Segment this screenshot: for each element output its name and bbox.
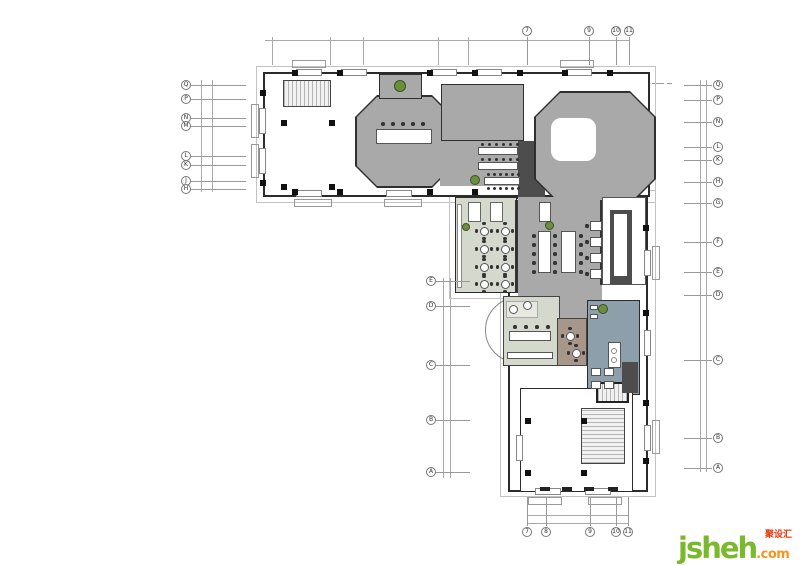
dining-table-round-chair [568, 342, 572, 346]
communal-chairs-dot [553, 252, 557, 256]
dining-table-round-chair [561, 334, 565, 338]
stair-room-upper [283, 80, 331, 107]
communal-chairs-dot [579, 270, 583, 274]
cafe-table-round [480, 245, 489, 254]
booth-chairs-dot [585, 240, 588, 243]
cafe-table-round-chair [503, 290, 507, 294]
training-chairs-dot [505, 173, 508, 176]
plant [470, 175, 480, 185]
wc-stall [604, 368, 614, 376]
window [644, 250, 651, 276]
cafe-table-round-chair [503, 258, 507, 262]
cafe-table-round-chair [482, 240, 486, 244]
grid-tick-left-upper-L [191, 156, 246, 157]
dim-line [700, 80, 701, 472]
lounge-chair [523, 301, 532, 310]
training-table [478, 147, 518, 155]
training-table [484, 177, 520, 185]
wc-dark-pocket [622, 362, 638, 393]
window-bay [251, 144, 259, 178]
dining-table-round [566, 332, 575, 341]
window [644, 330, 651, 356]
grid-bubble-right-A: A [713, 463, 723, 473]
column [281, 120, 287, 126]
window [516, 435, 523, 461]
window [296, 190, 322, 197]
dim-tick [330, 37, 331, 65]
training-chairs-dot [493, 173, 496, 176]
grid-tick-right-F [684, 242, 712, 243]
lobby-skylight [551, 118, 596, 161]
window [341, 69, 367, 76]
grid-bubble-left-upper-H: H [181, 184, 191, 194]
grid-tick-left-lower-D [436, 306, 470, 307]
grid-bubble-left-lower-A: A [426, 467, 436, 477]
grid-tick-right-A [684, 468, 712, 469]
grid-bubble-right-F: F [713, 237, 723, 247]
grid-tick-right-H [684, 182, 712, 183]
column [337, 70, 343, 76]
grid-tick-left-lower-A [436, 472, 470, 473]
training-chairs-dot [481, 143, 484, 146]
window-bay [652, 420, 660, 454]
window-bay [528, 497, 562, 505]
logo-tld: .com [756, 547, 789, 562]
lounge-chairs-dot [524, 325, 528, 329]
grid-bubble-right-D: D [713, 290, 723, 300]
cafe-table-round-chair [511, 282, 515, 286]
sill-dash [584, 487, 594, 491]
window-bay [652, 246, 660, 280]
booth-chairs-dot [585, 224, 588, 227]
cafe-table-round [480, 280, 489, 289]
grid-tick-left-upper-J [191, 181, 246, 182]
dim-line [527, 523, 629, 524]
grid-bubble-right-C: C [713, 355, 723, 365]
grid-bubble-bottom-11: 11 [623, 527, 633, 537]
dining-table-round-chair [574, 359, 578, 363]
booth-table [590, 253, 602, 263]
cafe-table-round [480, 227, 489, 236]
conference-chairs-dot [421, 122, 425, 126]
column [581, 470, 587, 476]
grid-bubble-top-9: 9 [584, 26, 594, 36]
window [386, 190, 412, 197]
window [431, 69, 457, 76]
window [644, 425, 651, 451]
cafe-table-round-chair [475, 247, 479, 251]
grid-bubble-left-lower-B: B [426, 415, 436, 425]
wc-basin [611, 357, 617, 363]
sill-dash [540, 487, 550, 491]
grid-tick-top-11 [629, 37, 630, 65]
training-chairs-dot [495, 143, 498, 146]
wc-urinal [590, 305, 598, 310]
training-chairs-dot [481, 158, 484, 161]
column [517, 70, 523, 76]
column [329, 184, 335, 190]
plant [462, 223, 470, 231]
grid-bubble-bottom-10: 10 [611, 527, 621, 537]
grid-bubble-left-upper-M: M [181, 121, 191, 131]
window [259, 108, 266, 134]
conference-chairs-dot [381, 122, 385, 126]
column [643, 400, 649, 406]
note-mark [667, 83, 672, 84]
private-dining-room [557, 318, 587, 366]
cafe-table-round-chair [482, 258, 486, 262]
window-bay [292, 60, 326, 68]
cafe-table-round [501, 280, 510, 289]
grid-tick-right-E [684, 272, 712, 273]
dim-line [201, 80, 202, 192]
plant [598, 304, 608, 314]
corridor-wall [515, 200, 518, 293]
function-room [441, 84, 524, 141]
communal-chairs-dot [532, 252, 536, 256]
communal-chairs-dot [579, 252, 583, 256]
jsheh-logo: 聚设汇 jsheh.com [678, 527, 794, 563]
service-table [539, 202, 551, 222]
column [260, 90, 266, 96]
communal-chairs-dot [532, 234, 536, 238]
column [562, 70, 568, 76]
grid-bubble-bottom-8: 8 [541, 527, 551, 537]
cafe-table-round-chair [475, 229, 479, 233]
booth-table [590, 269, 602, 279]
dim-tick [468, 37, 469, 65]
booth-chairs-dot [585, 272, 588, 275]
window [259, 148, 266, 174]
grid-tick-bottom-10 [616, 497, 617, 526]
lounge-sofa [507, 352, 553, 359]
grid-tick-left-upper-M [191, 126, 246, 127]
cafe-table-rect [490, 202, 503, 222]
grid-bubble-right-N: N [713, 117, 723, 127]
cafe-table-round-chair [475, 265, 479, 269]
grid-bubble-right-G: G [713, 198, 723, 208]
column [643, 310, 649, 316]
training-chairs-dot [516, 143, 519, 146]
grid-tick-right-G [684, 203, 712, 204]
grid-tick-bottom-7 [527, 497, 528, 526]
cafe-table-round-chair [490, 247, 494, 251]
dim-line [212, 80, 213, 192]
grid-bubble-left-lower-E: E [426, 276, 436, 286]
communal-chairs-dot [532, 261, 536, 265]
cafe-table-round-chair [482, 275, 486, 279]
dining-table-round-chair [574, 344, 578, 348]
bar-counter [614, 214, 627, 276]
column [525, 470, 531, 476]
lounge-chair [509, 305, 518, 314]
sill-dash [608, 487, 618, 491]
conference-chairs-dot [401, 122, 405, 126]
plant [394, 80, 406, 92]
grid-tick-bottom-9 [590, 497, 591, 526]
grid-tick-left-upper-K [191, 165, 246, 166]
wc-stall [591, 368, 601, 376]
lounge-chairs-dot [546, 325, 550, 329]
grid-tick-left-upper-N [191, 118, 246, 119]
training-table [478, 162, 518, 170]
booth-table [590, 221, 602, 231]
lounge-table [509, 331, 551, 341]
grid-bubble-left-upper-Q: Q [181, 80, 191, 90]
column [607, 70, 613, 76]
dim-line [450, 278, 451, 478]
plant [545, 221, 554, 230]
grid-bubble-left-lower-C: C [426, 360, 436, 370]
training-chairs-dot [502, 143, 505, 146]
training-chairs-dot [517, 173, 520, 176]
communal-chairs-dot [532, 270, 536, 274]
grid-tick-right-L [684, 147, 712, 148]
cafe-table-round-chair [482, 222, 486, 226]
dim-tick [363, 37, 364, 65]
grid-bubble-top-10: 10 [611, 26, 621, 36]
grid-bubble-top-11: 11 [624, 26, 634, 36]
training-chairs-dot [516, 158, 519, 161]
cafe-table-round-chair [511, 247, 515, 251]
dining-table-round-chair [567, 351, 571, 355]
sill-dash [562, 487, 572, 491]
cafe-table-round-chair [503, 240, 507, 244]
column [525, 418, 531, 424]
grid-bubble-left-lower-D: D [426, 301, 436, 311]
cafe-table-round-chair [496, 247, 500, 251]
grid-tick-right-K [684, 160, 712, 161]
column [643, 225, 649, 231]
window [296, 69, 322, 76]
window-bay [294, 199, 332, 207]
column [472, 70, 478, 76]
cafe-table-round-chair [496, 229, 500, 233]
grid-bubble-left-upper-P: P [181, 94, 191, 104]
wc-counter [608, 342, 621, 368]
cafe-table-round-chair [511, 265, 515, 269]
training-chairs-dot [511, 173, 514, 176]
wc-urinal [590, 314, 598, 319]
cafe-table-round-chair [503, 275, 507, 279]
training-chairs-dot [493, 187, 496, 190]
conference-table [376, 129, 432, 144]
column [292, 70, 298, 76]
conference-chairs-dot [391, 122, 395, 126]
dining-table-round-chair [582, 351, 586, 355]
window-bay [251, 104, 259, 138]
grid-bubble-right-B: B [713, 433, 723, 443]
training-chairs-dot [488, 143, 491, 146]
grid-bubble-right-K: K [713, 155, 723, 165]
wc-stall [604, 381, 614, 389]
training-chairs-dot [509, 143, 512, 146]
cafe-table-round-chair [496, 282, 500, 286]
communal-table [561, 231, 576, 273]
cafe-table-round [501, 227, 510, 236]
column [427, 189, 433, 195]
communal-chairs-dot [553, 261, 557, 265]
training-chairs-dot [517, 187, 520, 190]
grid-tick-bottom-11 [628, 497, 629, 526]
conference-chairs-dot [411, 122, 415, 126]
training-chairs-dot [505, 187, 508, 190]
grid-bubble-right-Q: Q [713, 80, 723, 90]
dining-table-round [572, 349, 581, 358]
cafe-table-round [501, 263, 510, 272]
dining-table-round-chair [576, 334, 580, 338]
grid-tick-right-C [684, 360, 712, 361]
grid-bubble-top-7: 7 [522, 26, 532, 36]
communal-chairs-dot [579, 243, 583, 247]
cafe-table-rect [468, 202, 481, 222]
communal-chairs-dot [553, 270, 557, 274]
window [566, 69, 592, 76]
communal-chairs-dot [553, 243, 557, 247]
training-chairs-dot [499, 173, 502, 176]
dim-tick [272, 37, 273, 65]
grid-bubble-bottom-7: 7 [522, 527, 532, 537]
grid-tick-top-7 [527, 37, 528, 65]
cafe-table-round [480, 263, 489, 272]
cafe-table-round-chair [475, 282, 479, 286]
grid-tick-right-Q [684, 85, 712, 86]
grid-tick-top-9 [589, 37, 590, 65]
grid-bubble-right-P: P [713, 95, 723, 105]
cafe-table-round-chair [496, 265, 500, 269]
grid-bubble-right-L: L [713, 142, 723, 152]
logo-wordmark-row: jsheh.com [678, 534, 789, 563]
grid-tick-left-upper-H [191, 189, 246, 190]
logo-wordmark: jsheh [678, 531, 756, 565]
grid-bubble-right-E: E [713, 267, 723, 277]
dim-line [706, 80, 707, 472]
column [337, 189, 343, 195]
column [329, 120, 335, 126]
training-chairs-dot [509, 158, 512, 161]
column [427, 70, 433, 76]
lounge-chairs-dot [535, 325, 539, 329]
grid-bubble-right-H: H [713, 177, 723, 187]
booth-chairs-dot [585, 256, 588, 259]
training-chairs-dot [502, 158, 505, 161]
grid-tick-left-upper-P [191, 99, 246, 100]
wc-basin [611, 348, 617, 354]
dining-table-round-chair [568, 327, 572, 331]
column [472, 189, 478, 195]
dim-line [265, 40, 630, 41]
cafe-table-round-chair [490, 282, 494, 286]
window-bay [384, 199, 422, 207]
wc-stall [591, 381, 601, 389]
column [581, 418, 587, 424]
training-chairs-dot [488, 158, 491, 161]
column [643, 458, 649, 464]
cafe-table-round-chair [482, 290, 486, 294]
column [260, 180, 266, 186]
grid-bubble-left-upper-K: K [181, 160, 191, 170]
training-chairs-dot [487, 173, 490, 176]
booth-table [590, 237, 602, 247]
communal-table [538, 231, 551, 273]
column [281, 184, 287, 190]
grid-tick-right-D [684, 295, 712, 296]
training-chairs-dot [487, 187, 490, 190]
grid-tick-left-lower-B [436, 420, 470, 421]
grid-tick-left-upper-Q [191, 85, 246, 86]
training-chairs-dot [511, 187, 514, 190]
cafe-table-round-chair [503, 222, 507, 226]
dim-line [527, 515, 629, 516]
window [476, 69, 502, 76]
grid-tick-left-lower-E [436, 281, 470, 282]
stair-hall [581, 408, 625, 464]
training-chairs-dot [499, 187, 502, 190]
cafe-booth-bench [457, 204, 462, 288]
communal-chairs-dot [579, 261, 583, 265]
grid-tick-left-lower-C [436, 365, 470, 366]
lounge-chairs-dot [513, 325, 517, 329]
floor-plan-canvas: QPNMLKJHEDCBAQPNLKHGFEDCBA7910117891011 … [0, 0, 800, 565]
dim-line [443, 278, 444, 478]
column [292, 189, 298, 195]
cafe-table-round [501, 245, 510, 254]
cafe-table-round-chair [490, 229, 494, 233]
grid-tick-right-P [684, 100, 712, 101]
grid-tick-bottom-8 [546, 497, 547, 526]
grid-bubble-bottom-9: 9 [585, 527, 595, 537]
grid-tick-right-N [684, 122, 712, 123]
grid-tick-right-B [684, 438, 712, 439]
cafe-table-round-chair [511, 229, 515, 233]
communal-chairs-dot [553, 234, 557, 238]
grid-tick-top-10 [616, 37, 617, 65]
communal-chairs-dot [579, 234, 583, 238]
dim-tick [438, 37, 439, 65]
training-chairs-dot [495, 158, 498, 161]
communal-chairs-dot [532, 243, 536, 247]
cafe-table-round-chair [490, 265, 494, 269]
